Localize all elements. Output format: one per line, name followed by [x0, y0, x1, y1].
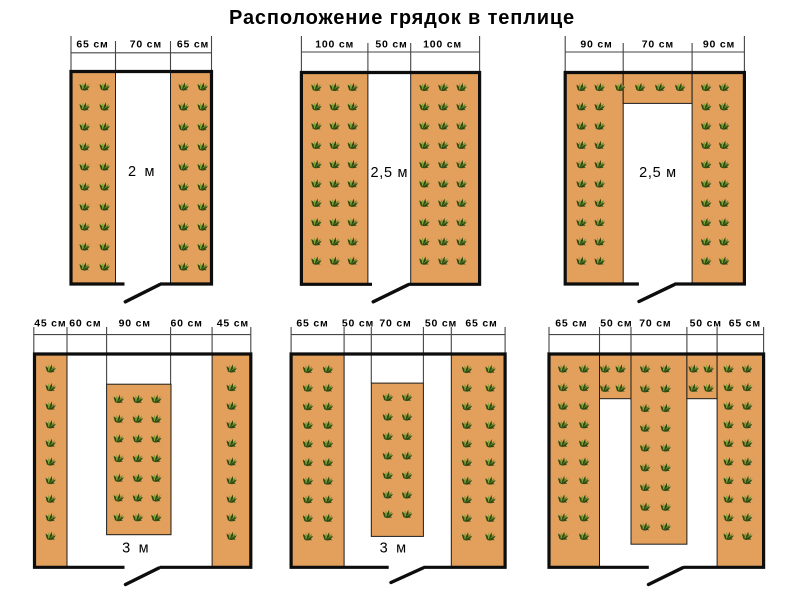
svg-text:2 м: 2 м [128, 164, 157, 180]
svg-text:50 см: 50 см [425, 318, 457, 330]
svg-text:50 см: 50 см [375, 39, 407, 51]
svg-text:100 см: 100 см [423, 39, 462, 51]
svg-text:50 см: 50 см [342, 318, 374, 330]
svg-text:50 см: 50 см [600, 318, 632, 330]
svg-text:70 см: 70 см [379, 318, 411, 330]
svg-text:70 см: 70 см [130, 39, 162, 51]
svg-text:65 см: 65 см [729, 318, 761, 330]
svg-text:70 см: 70 см [639, 318, 671, 330]
svg-text:50 см: 50 см [690, 318, 722, 330]
svg-text:90 см: 90 см [580, 39, 612, 51]
svg-text:90 см: 90 см [703, 39, 735, 51]
svg-text:45 см: 45 см [217, 318, 249, 330]
svg-text:2,5 м: 2,5 м [639, 165, 677, 181]
svg-text:2,5 м: 2,5 м [370, 165, 408, 181]
svg-text:65 см: 65 см [296, 318, 328, 330]
svg-text:90 см: 90 см [119, 318, 151, 330]
svg-text:70 см: 70 см [642, 39, 674, 51]
svg-text:60 см: 60 см [170, 318, 202, 330]
svg-text:100 см: 100 см [315, 39, 354, 51]
svg-text:60 см: 60 см [69, 318, 101, 330]
svg-text:65 см: 65 см [76, 39, 108, 51]
svg-text:45 см: 45 см [34, 318, 66, 330]
svg-text:65 см: 65 см [177, 39, 209, 51]
svg-text:65 см: 65 см [555, 318, 587, 330]
svg-text:65 см: 65 см [465, 318, 497, 330]
svg-text:Расположение грядок в теплице: Расположение грядок в теплице [229, 7, 575, 29]
svg-text:3 м: 3 м [380, 541, 409, 557]
svg-text:3 м: 3 м [122, 541, 151, 557]
